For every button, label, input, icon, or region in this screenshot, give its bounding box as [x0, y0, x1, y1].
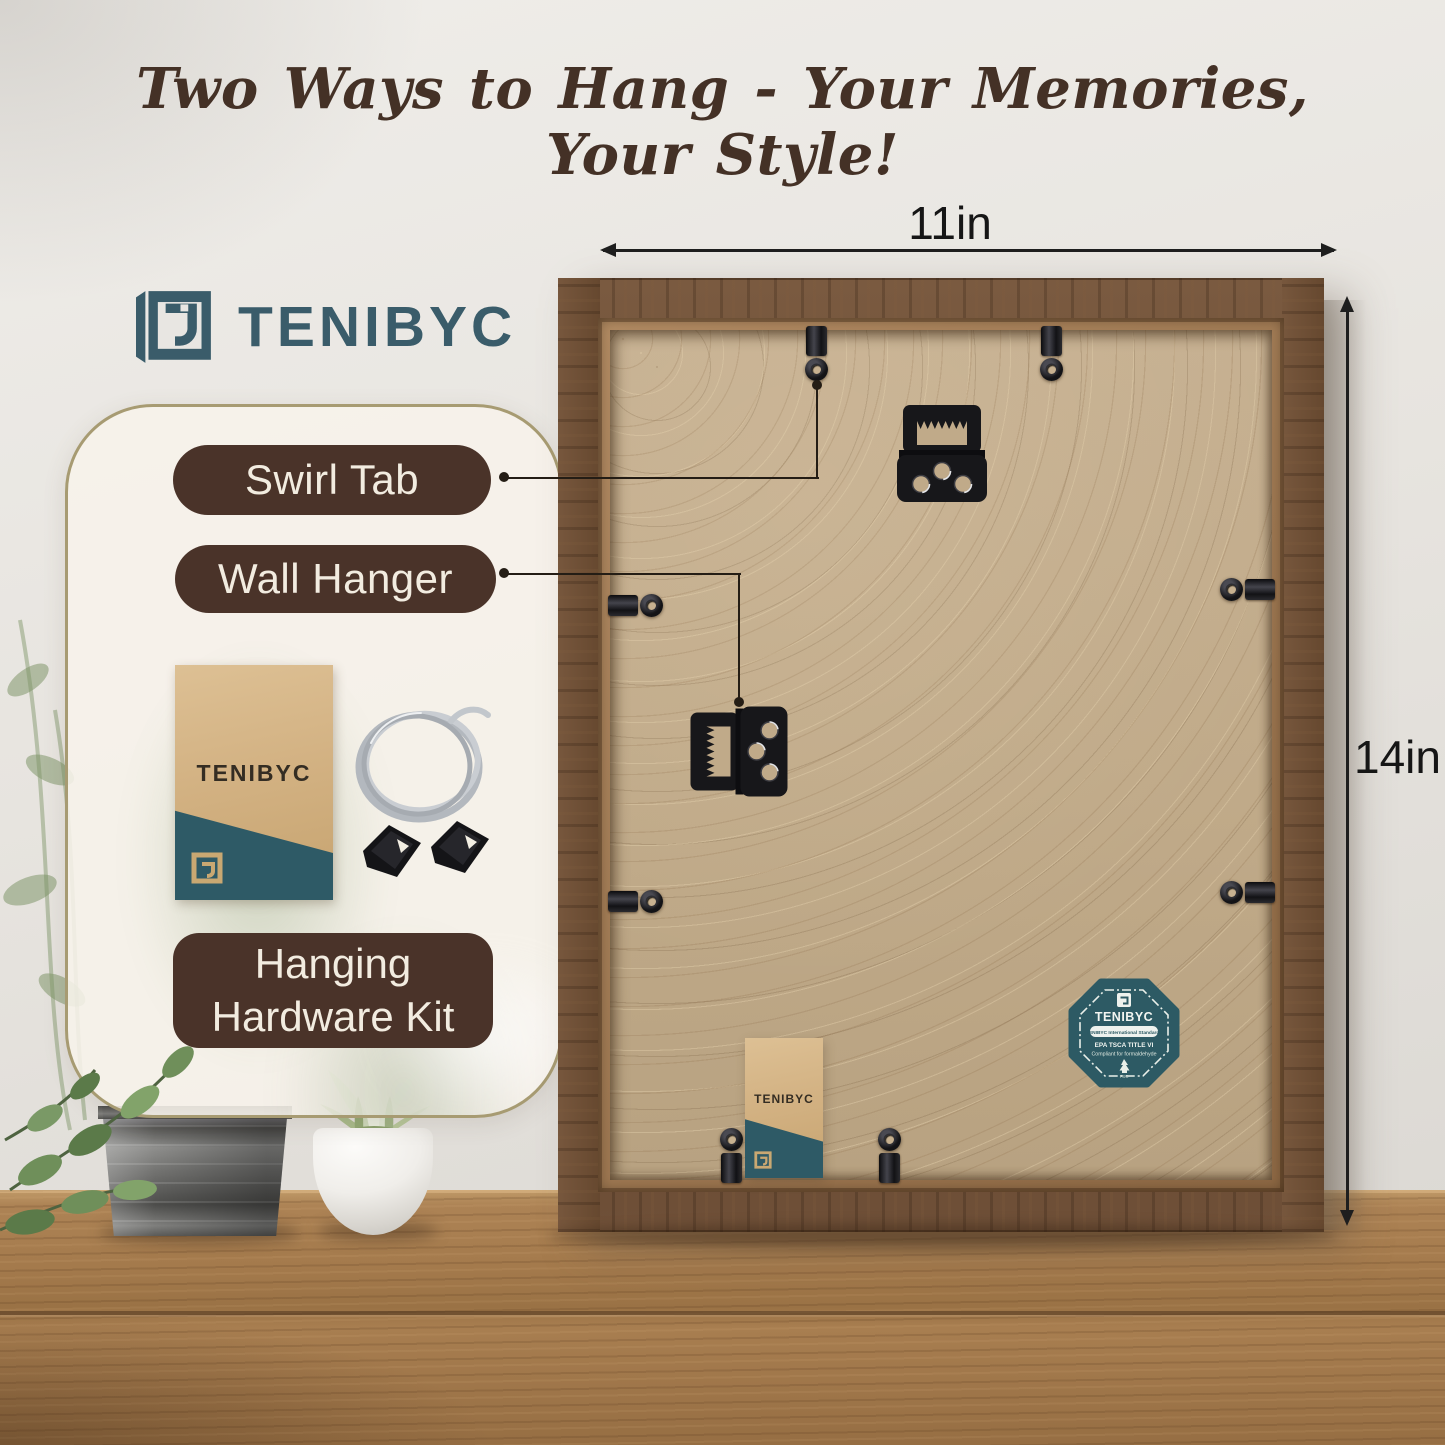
plant-front-icon	[0, 990, 250, 1245]
swirl-tab-icon	[805, 326, 828, 382]
table-plank-seam	[0, 1311, 1445, 1315]
compliance-badge: TENIBYC TENIBYC International Standards …	[1068, 978, 1180, 1088]
swirl-tab-icon	[608, 594, 664, 617]
swirl-tab-eyelet	[720, 1128, 743, 1151]
hanging-wire-icon	[351, 683, 493, 835]
product-infographic: Swirl Tab Wall Hanger TENIBYC	[0, 0, 1445, 1445]
swirl-tab-eyelet	[640, 594, 663, 617]
wall-hanger-clip-icon	[427, 817, 493, 875]
picture-frame-back: TENIBYC TENIBYC TENIBYC International St…	[558, 278, 1324, 1232]
swirl-tab-icon	[878, 1127, 901, 1183]
swirl-tab-icon	[1219, 578, 1275, 601]
callout-wall-hanger-label: Wall Hanger	[218, 555, 453, 603]
swirl-tab-stem	[1245, 579, 1275, 600]
badge-cert-text: FSC	[1120, 1074, 1129, 1079]
badge-brand-text: TENIBYC	[1095, 1010, 1153, 1024]
tenibyc-frame-logo-icon	[136, 288, 214, 366]
frame-wood-left	[558, 278, 600, 1232]
swirl-tab-stem	[608, 595, 638, 616]
swirl-tab-eyelet	[878, 1128, 901, 1151]
swirl-tab-eyelet	[1220, 578, 1243, 601]
swirl-tab-icon	[608, 890, 664, 913]
height-dimension-label: 14in	[1354, 730, 1441, 784]
badge-pill-text: TENIBYC International Standards	[1086, 1030, 1162, 1036]
sawtooth-hanger-icon	[897, 405, 987, 502]
swirl-tab-stem	[1245, 882, 1275, 903]
swirl-tab-stem	[879, 1153, 900, 1183]
hardware-kit-envelope: TENIBYC	[175, 665, 333, 900]
tenibyc-frame-logo-icon	[753, 1150, 773, 1170]
swirl-tab-eyelet	[1040, 358, 1063, 381]
tenibyc-frame-logo-icon	[189, 850, 225, 886]
wall-hanger-clip-icon	[359, 821, 425, 879]
frame-envelope: TENIBYC	[745, 1038, 823, 1178]
swirl-tab-stem	[1041, 326, 1062, 356]
badge-compliance-line2: Compliant for formaldehyde	[1091, 1052, 1156, 1058]
callout-wall-hanger: Wall Hanger	[175, 545, 496, 613]
swirl-tab-icon	[1040, 326, 1063, 382]
wall-hanger-leader-line	[738, 574, 740, 700]
brand-logo-text: TENIBYC	[238, 294, 516, 360]
arrowhead-down-icon	[1340, 1210, 1354, 1226]
brand-logo: TENIBYC	[136, 288, 516, 366]
wall-hanger-leader-dot	[734, 697, 744, 707]
swirl-tab-eyelet	[640, 890, 663, 913]
swirl-tab-eyelet	[805, 358, 828, 381]
sawtooth-hanger-icon	[691, 707, 788, 797]
swirl-tab-stem	[608, 891, 638, 912]
wall-hanger-leader-line	[507, 573, 741, 575]
swirl-tab-stem	[806, 326, 827, 356]
frame-table-shadow	[548, 1224, 1338, 1248]
swirl-tab-leader-line	[507, 477, 819, 479]
callout-swirl-tab-label: Swirl Tab	[245, 456, 419, 504]
frame-wood-right	[1282, 278, 1324, 1232]
envelope-brand-text: TENIBYC	[745, 1092, 823, 1106]
swirl-tab-stem	[721, 1153, 742, 1183]
envelope-brand-text: TENIBYC	[175, 760, 333, 787]
badge-compliance-line1: EPA TSCA TITLE VI	[1095, 1042, 1154, 1049]
swirl-tab-icon	[720, 1127, 743, 1183]
arrowhead-up-icon	[1340, 296, 1354, 312]
swirl-tab-eyelet	[1220, 881, 1243, 904]
width-dimension-line	[603, 249, 1334, 252]
swirl-tab-icon	[1219, 881, 1275, 904]
width-dimension-label: 11in	[850, 196, 1050, 250]
arrowhead-right-icon	[1321, 243, 1337, 257]
swirl-tab-leader-line	[816, 386, 818, 479]
height-dimension-line	[1346, 310, 1349, 1212]
callout-swirl-tab: Swirl Tab	[173, 445, 491, 515]
arrowhead-left-icon	[600, 243, 616, 257]
headline: Two Ways to Hang - Your Memories, Your S…	[70, 56, 1375, 188]
swirl-tab-leader-dot	[812, 380, 822, 390]
